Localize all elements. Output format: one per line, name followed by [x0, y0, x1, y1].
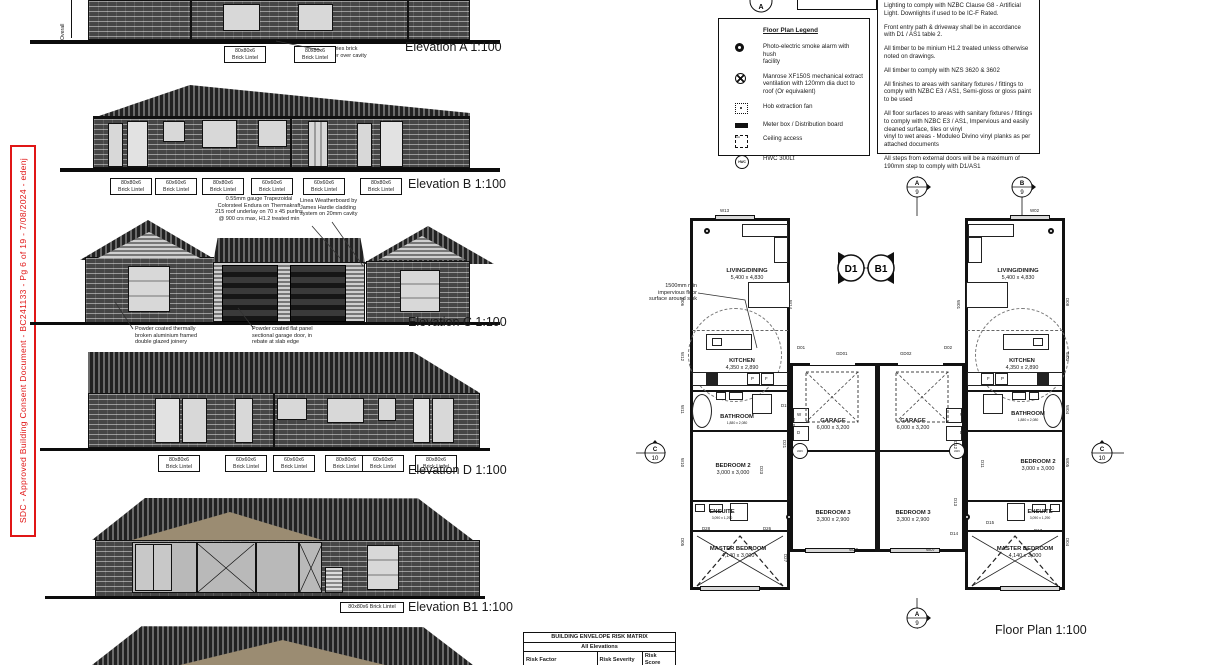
sink-leader	[698, 293, 757, 348]
marker-sheet: 10	[652, 456, 659, 462]
leader-line	[312, 226, 340, 258]
marker-label: B	[1020, 181, 1025, 187]
detail-marker-d1b1: D1 B1	[838, 252, 894, 284]
marker-label: A	[758, 4, 763, 11]
leader-line	[276, 41, 320, 50]
detail-label: B1	[875, 264, 888, 275]
leader-line	[238, 308, 254, 329]
detail-label: D1	[845, 264, 858, 275]
section-marker-top-cut: A	[750, 0, 772, 12]
leader-line	[115, 302, 133, 329]
section-marker: C 10	[1091, 440, 1124, 463]
section-marker: A 9	[907, 598, 931, 629]
leader-line	[332, 222, 363, 266]
section-marker: C 10	[636, 440, 666, 463]
marker-sheet: 10	[1099, 456, 1106, 462]
plan-overlay: D1 B1 A A 9 B 9	[0, 0, 1210, 665]
section-marker: B 9	[1012, 176, 1036, 216]
marker-label: A	[915, 181, 920, 187]
drawing-sheet: SDC - Approved Building Consent Document…	[0, 0, 1210, 665]
marker-label: C	[1100, 447, 1105, 453]
marker-label: C	[653, 447, 658, 453]
marker-label: A	[915, 612, 920, 618]
section-marker: A 9	[907, 176, 931, 216]
